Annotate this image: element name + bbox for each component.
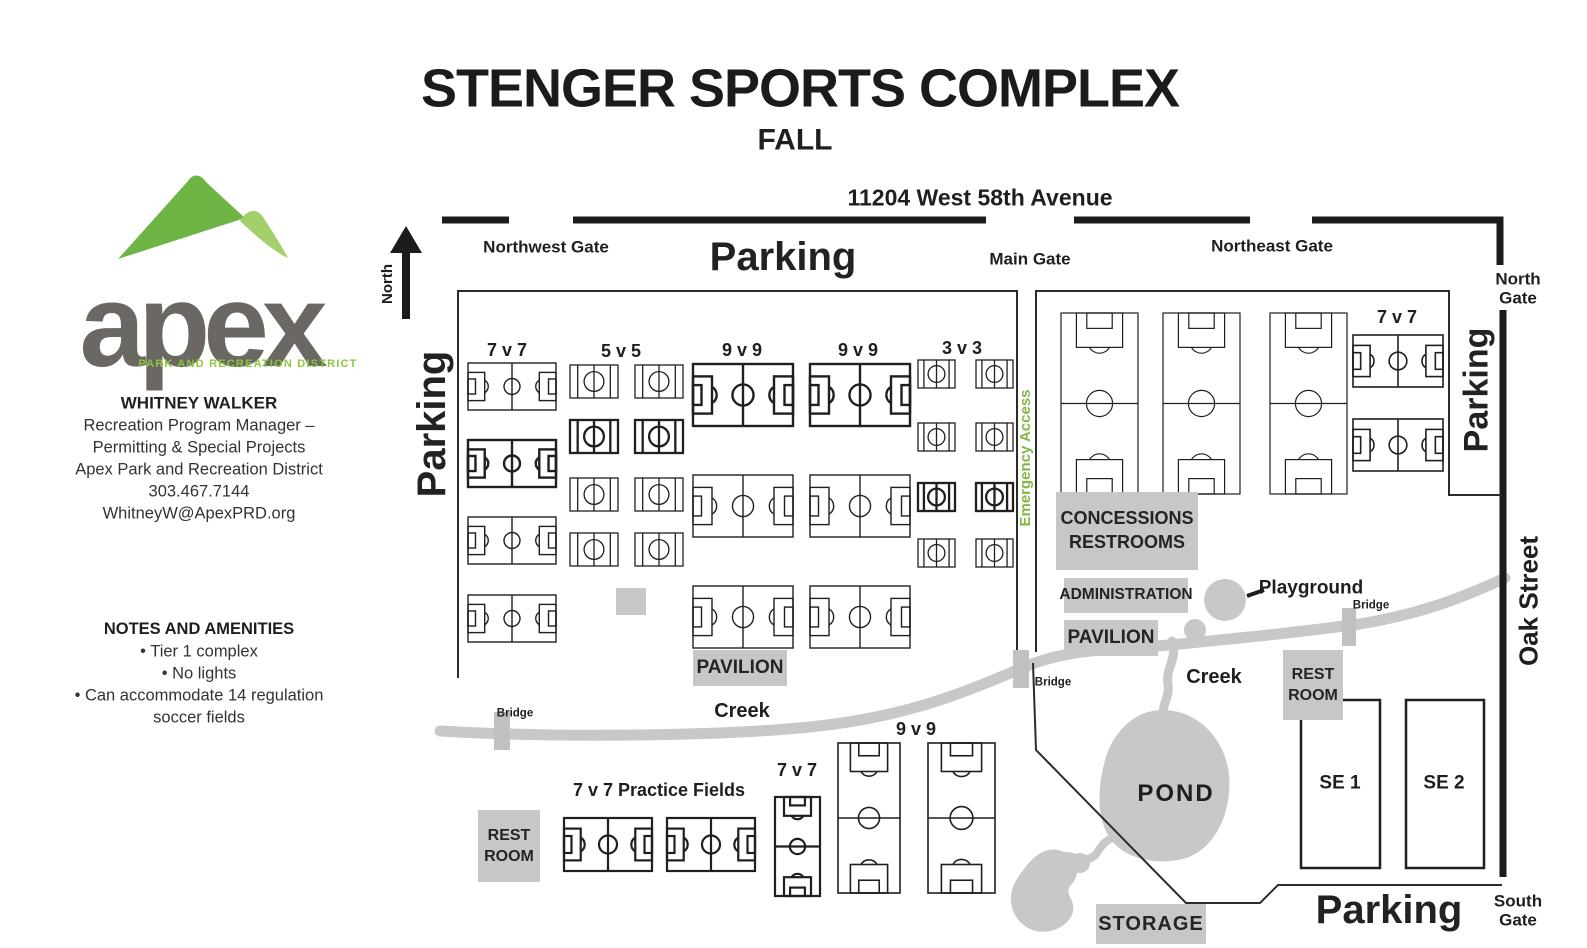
gate-northwest: Northwest Gate xyxy=(483,239,609,258)
concessions-label: CONCESSIONS xyxy=(1060,507,1193,531)
contact-email: WhitneyW@ApexPRD.org xyxy=(103,505,296,524)
administration-box: ADMINISTRATION xyxy=(1064,578,1188,613)
pond-label: POND xyxy=(1137,781,1214,807)
parking-south-label: Parking xyxy=(1316,888,1463,932)
pavilion-label: PAVILION xyxy=(1068,625,1155,650)
group-label-5v5: 5 v 5 xyxy=(601,342,641,362)
contact-role-line1: Recreation Program Manager – xyxy=(83,417,314,436)
gate-main: Main Gate xyxy=(989,251,1070,270)
gate-south: South Gate xyxy=(1487,892,1549,929)
room-label: ROOM xyxy=(484,846,534,867)
bridge-center xyxy=(1013,650,1029,688)
apex-logo-tagline: PARK AND RECREATION DISTRICT xyxy=(138,358,357,370)
group-label-9v9-a: 9 v 9 xyxy=(722,341,762,361)
page-title: STENGER SPORTS COMPLEX xyxy=(421,59,1179,118)
flyer-page: STENGER SPORTS COMPLEX FALL 11204 West 5… xyxy=(0,0,1587,948)
bridge-label-west: Bridge xyxy=(497,708,533,721)
group-label-3v3: 3 v 3 xyxy=(942,339,982,359)
north-arrow-label: North xyxy=(380,264,397,304)
rest-label: REST xyxy=(488,825,531,846)
pavilion-box-west: PAVILION xyxy=(693,650,787,686)
group-label-7v7-west: 7 v 7 xyxy=(487,341,527,361)
lower-pond-shape xyxy=(1011,849,1077,931)
bridge-east xyxy=(1342,608,1356,646)
storage-label: STORAGE xyxy=(1098,911,1204,937)
street-address: 11204 West 58th Avenue xyxy=(847,185,1112,210)
parking-north-label: Parking xyxy=(710,235,857,279)
group-label-7v7-south: 7 v 7 xyxy=(777,761,817,781)
pond-inlet-stream xyxy=(1163,641,1174,714)
contact-name: WHITNEY WALKER xyxy=(121,395,277,414)
gate-northeast: Northeast Gate xyxy=(1211,238,1333,257)
emergency-access-label: Emergency Access xyxy=(1018,389,1035,526)
group-label-7v7-northeast: 7 v 7 xyxy=(1377,308,1417,328)
playground-label: Playground xyxy=(1259,579,1364,600)
group-label-practice-fields: 7 v 7 Practice Fields xyxy=(573,781,745,801)
bridge-label-east: Bridge xyxy=(1353,600,1389,613)
contact-phone: 303.467.7144 xyxy=(149,483,250,502)
logo-mountain-small xyxy=(240,211,288,258)
note-item: Tier 1 complex xyxy=(140,643,258,662)
concessions-restrooms-box: CONCESSIONS RESTROOMS xyxy=(1056,492,1198,570)
room-label: ROOM xyxy=(1288,685,1338,706)
notes-title: NOTES AND AMENITIES xyxy=(104,620,294,638)
playground-area-large xyxy=(1204,579,1246,621)
pavilion-box-east: PAVILION xyxy=(1064,620,1158,656)
small-structure xyxy=(616,588,646,615)
lower-pond-pool xyxy=(1070,853,1090,873)
season-label: FALL xyxy=(758,124,833,157)
restrooms-label: RESTROOMS xyxy=(1069,531,1185,555)
rest-label: REST xyxy=(1292,664,1335,685)
group-label-9v9-b: 9 v 9 xyxy=(838,341,878,361)
bridge-label-center: Bridge xyxy=(1035,677,1071,690)
parking-east-label: Parking xyxy=(1458,328,1495,453)
gate-north: North Gate xyxy=(1487,270,1549,307)
apex-logo-wordmark: apex xyxy=(80,262,321,392)
oak-street-label: Oak Street xyxy=(1515,536,1544,666)
soccer-fields-layer xyxy=(468,313,1443,896)
contact-role-line2: Permitting & Special Projects xyxy=(93,439,306,458)
note-item: Can accommodate 14 regulation soccer fie… xyxy=(65,685,333,730)
restroom-box-west: REST ROOM xyxy=(478,810,540,882)
field-se1-label: SE 1 xyxy=(1319,774,1360,795)
parking-west-label: Parking xyxy=(410,351,454,498)
storage-box: STORAGE xyxy=(1096,904,1206,944)
administration-label: ADMINISTRATION xyxy=(1059,585,1192,605)
restroom-box-east: REST ROOM xyxy=(1283,650,1343,720)
playground-area-small xyxy=(1184,619,1206,641)
note-item: No lights xyxy=(162,665,237,684)
pavilion-label: PAVILION xyxy=(697,655,784,680)
creek-label-east: Creek xyxy=(1186,666,1242,688)
field-se2-label: SE 2 xyxy=(1423,774,1464,795)
contact-org: Apex Park and Recreation District xyxy=(75,461,323,480)
logo-mountain-large xyxy=(118,175,245,259)
group-label-9v9-south: 9 v 9 xyxy=(896,720,936,740)
creek-label-west: Creek xyxy=(714,700,770,722)
